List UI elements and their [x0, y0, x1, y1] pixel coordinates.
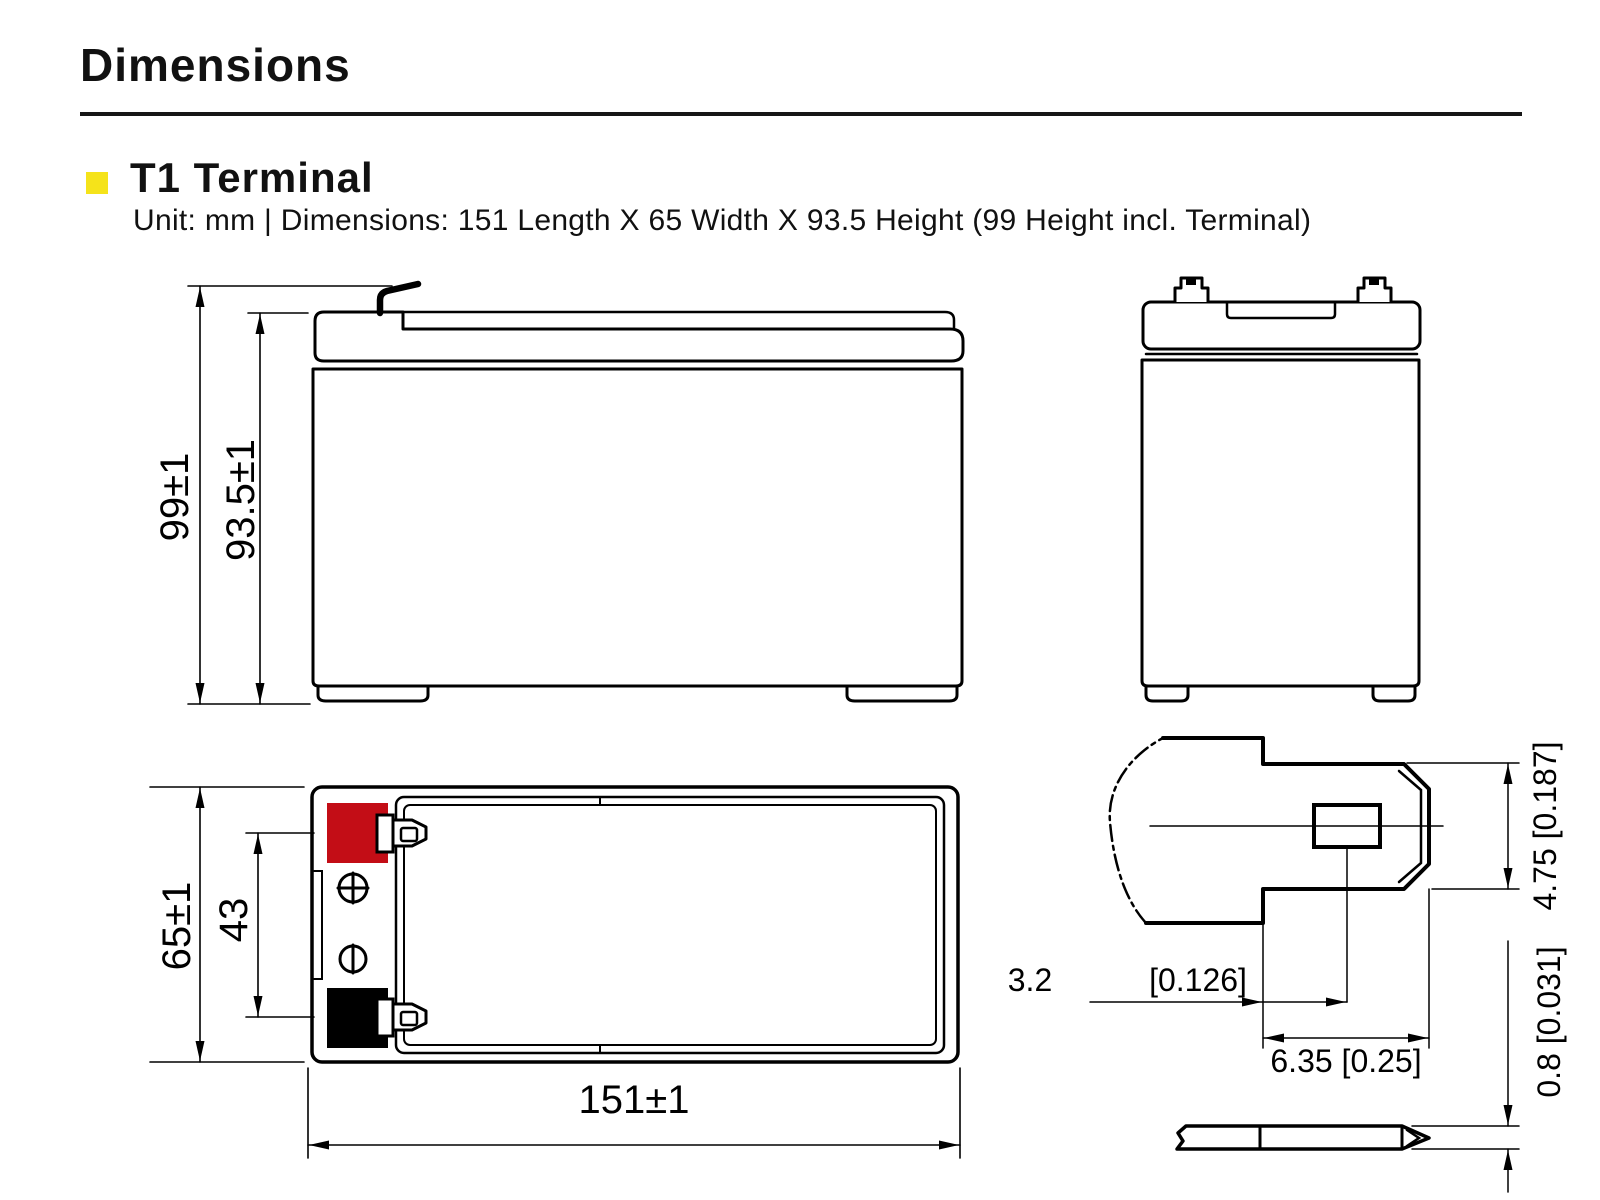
arrow-down-icon	[196, 683, 205, 703]
arrow-down-icon	[1504, 1105, 1513, 1125]
battery-dimension-drawing: 99±1 93.5±1	[0, 0, 1600, 1200]
arrow-up-icon	[196, 287, 205, 307]
arrow-down-icon	[196, 1041, 205, 1061]
side-foot-right	[1373, 686, 1415, 701]
front-foot-left	[318, 686, 428, 701]
front-lid	[315, 312, 963, 361]
tab-offset-mm-label: 3.2	[1008, 962, 1052, 998]
arrow-up-icon	[1504, 764, 1513, 784]
side-terminal-slot-left	[1186, 278, 1196, 285]
terminal-spacing-label: 43	[212, 898, 256, 943]
arrow-right-icon	[1408, 1034, 1428, 1043]
front-terminal-tab	[380, 284, 418, 313]
negative-tab-hole	[401, 1012, 417, 1025]
case-height-label: 93.5±1	[219, 439, 263, 561]
tab-thickness-label: 0.8 [0.031]	[1531, 946, 1567, 1097]
front-body	[313, 369, 962, 686]
side-body	[1142, 360, 1419, 686]
arrow-right-icon	[1326, 998, 1346, 1007]
arrow-left-icon	[1264, 1034, 1284, 1043]
arrow-left-icon	[309, 1141, 329, 1150]
top-view: 65±1 43 151±1	[150, 787, 960, 1158]
arrow-down-icon	[254, 996, 263, 1016]
negative-tab-base	[377, 999, 393, 1036]
arrow-up-icon	[256, 314, 265, 334]
tab-offset-inch-label: [0.126]	[1149, 962, 1247, 998]
arrow-right-icon	[1242, 998, 1262, 1007]
positive-tab-hole	[401, 828, 417, 841]
front-view: 99±1 93.5±1	[153, 284, 963, 704]
positive-tab-base	[377, 815, 393, 852]
arrow-up-icon	[196, 788, 205, 808]
front-foot-right	[847, 686, 957, 701]
tab-section-plate	[1177, 1126, 1429, 1149]
side-foot-left	[1146, 686, 1188, 701]
width-label: 65±1	[155, 882, 199, 971]
side-terminal-slot-right	[1369, 278, 1379, 285]
arrow-up-icon	[254, 834, 263, 854]
arrow-down-icon	[1504, 868, 1513, 888]
side-view	[1142, 278, 1420, 701]
arrow-right-icon	[939, 1141, 959, 1150]
terminal-detail-view: 3.2 [0.126] 6.35 [0.25] 4.75 [0.187]	[1008, 738, 1567, 1192]
datasheet-dimensions-page: Dimensions T1 Terminal Unit: mm | Dimens…	[0, 0, 1600, 1200]
front-lid-back-edge	[403, 312, 954, 329]
tab-width-label: 6.35 [0.25]	[1270, 1043, 1421, 1079]
arrow-down-icon	[256, 683, 265, 703]
side-lid	[1143, 302, 1420, 349]
length-label: 151±1	[579, 1078, 690, 1122]
overall-height-label: 99±1	[153, 453, 197, 542]
arrow-up-icon	[1504, 1150, 1513, 1170]
tab-height-label: 4.75 [0.187]	[1527, 741, 1563, 910]
